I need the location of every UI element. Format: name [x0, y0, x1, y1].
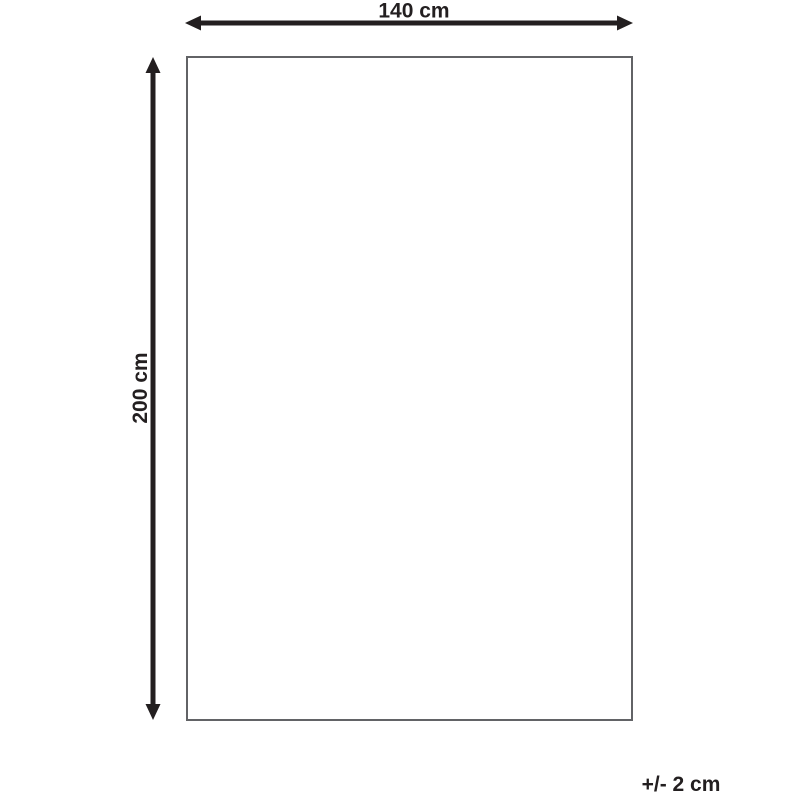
- arrowhead-left-icon: [185, 16, 201, 31]
- height-label: 200 cm: [129, 352, 152, 423]
- tolerance-label: +/- 2 cm: [642, 773, 721, 796]
- arrowhead-right-icon: [617, 16, 633, 31]
- width-label: 140 cm: [378, 0, 449, 23]
- dimension-diagram: 140 cm 200 cm +/- 2 cm: [0, 0, 800, 800]
- arrowhead-down-icon: [146, 704, 161, 720]
- diagram-svg: 140 cm 200 cm +/- 2 cm: [0, 0, 800, 800]
- arrowhead-up-icon: [146, 57, 161, 73]
- product-outline-rect: [187, 57, 632, 720]
- width-dimension: 140 cm: [185, 0, 633, 31]
- height-dimension: 200 cm: [129, 57, 161, 720]
